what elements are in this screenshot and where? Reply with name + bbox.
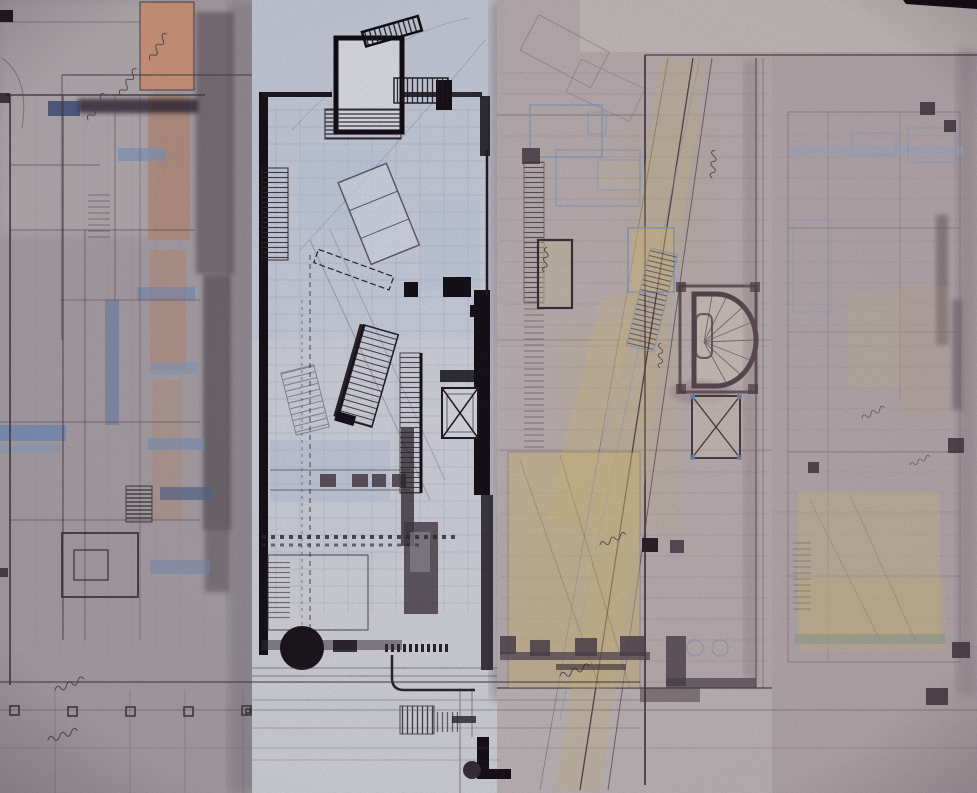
scanned-architectural-drawing-photo	[0, 0, 977, 793]
vignette-overlay	[0, 0, 977, 793]
drawing-canvas	[0, 0, 977, 793]
